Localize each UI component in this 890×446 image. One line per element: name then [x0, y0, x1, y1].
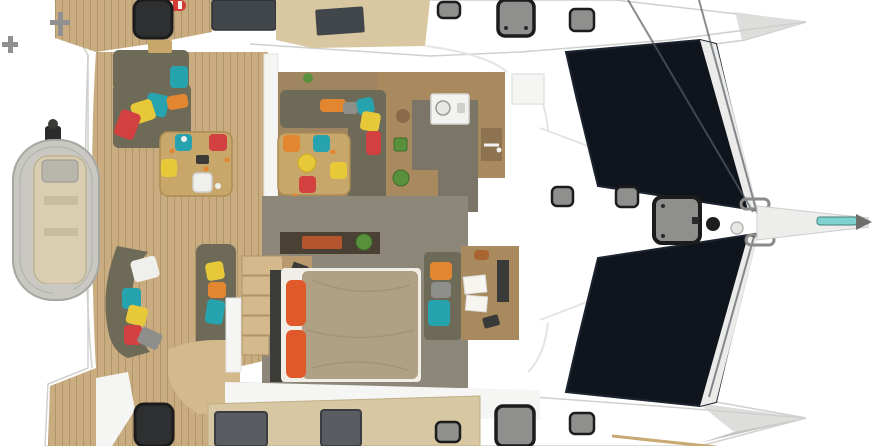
engine-hatch-2	[321, 410, 361, 446]
desk-laptop	[497, 260, 509, 302]
bow-fitting-ball	[731, 222, 743, 234]
deck-hatch-aft-port	[135, 404, 173, 446]
bowsprit-teal-fitting	[817, 217, 857, 225]
port-cleat-post	[8, 36, 13, 53]
step-5	[242, 336, 269, 355]
stool-teal	[313, 135, 330, 152]
pillow-gray	[431, 282, 451, 298]
table-decor-dot	[170, 149, 175, 154]
shelf-plant	[356, 234, 372, 250]
pillow-yellow	[205, 261, 226, 282]
pillow-red	[366, 131, 381, 155]
plant-round	[393, 170, 409, 186]
stool-red	[299, 176, 316, 193]
pillow-teal	[204, 299, 225, 325]
stove-knob-panel	[457, 103, 465, 113]
deck-hatch-small	[570, 9, 594, 31]
stern-cleat-bar	[50, 20, 70, 25]
deck-hatch-small	[438, 2, 460, 18]
dinghy-seat-1	[44, 196, 78, 205]
table-decor-dot	[225, 158, 230, 163]
engine-hatch-1	[215, 412, 267, 446]
pillow-teal	[428, 300, 450, 326]
table-plate	[215, 183, 221, 189]
desk-paper	[463, 275, 487, 294]
outboard-motor-head	[48, 119, 58, 129]
stool-white	[193, 173, 212, 192]
stool-yellow	[161, 159, 177, 177]
table-decor-dot	[204, 167, 209, 172]
lifebuoy-stripe-2	[178, 1, 182, 9]
hatch-bolt	[504, 26, 508, 30]
aft-skylight-window	[212, 0, 276, 30]
foredeck-hatch-2	[616, 187, 638, 207]
salon-door-frame	[264, 54, 278, 212]
hatch-bolt	[524, 26, 528, 30]
table-decor-dot	[331, 150, 336, 155]
bed-pillow-orange	[286, 280, 306, 326]
pillow-orange	[320, 99, 346, 112]
table-speaker	[196, 155, 209, 164]
deck-hatch-large	[496, 406, 534, 446]
bed-pillow-orange	[286, 330, 306, 378]
dinghy-seat-2	[44, 228, 78, 236]
coachroof-window	[315, 6, 365, 35]
hatch-bolt	[661, 204, 665, 208]
step-4	[242, 316, 273, 335]
windlass	[706, 217, 720, 231]
deck-hatch-small	[570, 413, 594, 434]
stool-orange	[283, 135, 300, 152]
foredeck-hatch-1	[552, 187, 573, 206]
deck-hatch-aft-starboard	[134, 0, 172, 38]
pillow-orange	[430, 262, 452, 280]
dinghy-console	[42, 160, 78, 182]
bed-headboard	[270, 270, 282, 382]
pillow-gray	[343, 102, 358, 114]
hatch-latch	[692, 217, 699, 224]
cabin-door-panel	[226, 298, 241, 372]
stool-yellow	[330, 162, 347, 179]
desk-croissant	[474, 250, 489, 260]
stove-burner	[436, 101, 450, 115]
plant-pot	[396, 109, 410, 123]
cockpit-side-board	[148, 40, 172, 53]
plant-square	[394, 138, 407, 151]
plant-small	[303, 73, 313, 83]
pillow-yellow	[359, 111, 381, 133]
shelf-tray	[302, 236, 342, 249]
sink-faucet-head	[497, 148, 502, 153]
hatch-bolt	[661, 234, 665, 238]
pillow-orange	[208, 282, 226, 298]
stool-red	[209, 134, 227, 151]
deck-hatch-large	[498, 0, 534, 36]
table-plate	[181, 136, 187, 142]
deck-hatch-small	[436, 422, 460, 442]
catamaran-render	[0, 0, 890, 446]
pillow-teal	[170, 66, 188, 88]
deck-hatch-outline	[512, 74, 544, 104]
catamaran-top-view-svg	[0, 0, 890, 446]
desk-paper	[465, 295, 487, 312]
fruit-bowl	[298, 154, 316, 172]
